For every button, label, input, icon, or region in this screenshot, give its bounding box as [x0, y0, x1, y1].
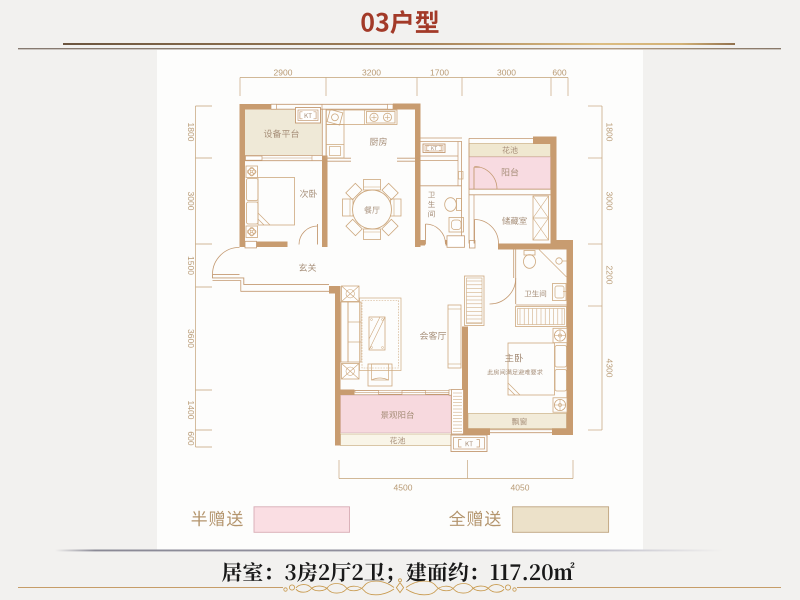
svg-text:2200: 2200: [605, 266, 615, 285]
svg-text:3000: 3000: [605, 192, 615, 211]
svg-text:1500: 1500: [186, 256, 196, 275]
svg-text:1400: 1400: [186, 401, 196, 420]
svg-text:3600: 3600: [186, 329, 196, 348]
svg-text:4050: 4050: [511, 483, 530, 493]
svg-text:4500: 4500: [394, 483, 413, 493]
svg-text:3000: 3000: [497, 68, 516, 78]
svg-text:2900: 2900: [274, 68, 293, 78]
svg-text:1700: 1700: [430, 68, 449, 78]
svg-text:1800: 1800: [186, 123, 196, 142]
svg-text:600: 600: [552, 68, 566, 78]
svg-text:1800: 1800: [605, 123, 615, 142]
svg-text:4300: 4300: [605, 359, 615, 378]
svg-text:600: 600: [186, 431, 196, 445]
svg-text:3200: 3200: [362, 68, 381, 78]
svg-text:3000: 3000: [186, 192, 196, 211]
